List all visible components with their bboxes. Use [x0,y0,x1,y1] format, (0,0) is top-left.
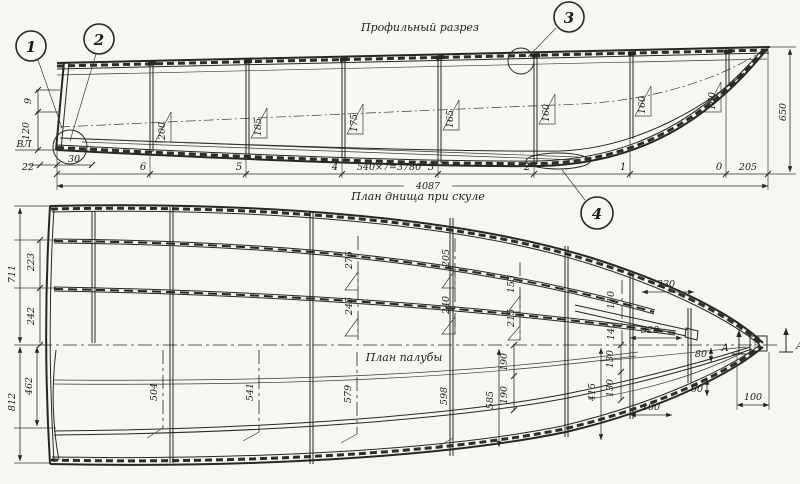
dim-9: 9 [23,98,34,104]
plan-frame-630 [630,272,633,419]
callout-3: 3 [564,9,574,27]
deck-dim-60: 60 [691,384,703,395]
deck-dim-541: 541 [245,383,256,401]
frame-5 [246,59,249,157]
waterline-label: ВЛ [16,139,33,150]
callout-2: 2 [93,31,104,49]
dim-650: 650 [778,103,789,121]
frame-flag-160a: 160 [541,104,552,122]
deck-dim-100a: 100 [642,402,660,413]
dim-462: 462 [24,377,35,396]
deck-dim-190a: 190 [499,353,510,371]
chine-outline-hatch [51,208,761,344]
deck-dim-190b: 190 [499,386,510,404]
chine-dim-153: 153 [506,275,517,293]
frame-0 [726,49,729,86]
deck-dim-80: 80 [695,349,707,360]
profile-title: Профильный разрез [360,21,479,34]
callout-1: 1 [26,38,36,56]
deck-dim-100b: 100 [744,392,762,403]
frame-flag-160c: 160 [707,92,718,110]
deck-dim-130b: 130 [605,379,616,397]
dim-bow-205: 205 [738,162,757,173]
blueprint-canvas: 200 185 175 165 160 160 160 Профильный р… [0,0,800,484]
deck-plan-title: План палубы [365,351,443,364]
station-0: 0 [716,162,723,173]
plan-frame-565 [565,246,568,437]
sheer-hatch-band [57,50,769,66]
blueprint-page: 200 185 175 165 160 160 160 Профильный р… [0,0,800,484]
dim-120: 120 [21,122,32,140]
chine-flag-leaders [358,236,622,344]
stern-knee-curve [53,350,59,460]
frame-6 [150,61,153,152]
frame-flag-185: 185 [253,118,264,136]
transom-plan-inner [50,208,54,462]
station-4: 4 [331,162,338,173]
section-label-left: А [720,343,729,354]
deck-dim-415: 415 [587,383,598,402]
deck-dim-504: 504 [149,383,160,401]
chine-dim-140: 140 [606,322,617,340]
frame-flag-200: 200 [157,122,168,141]
frame-4 [342,57,345,161]
frame-flag-160b: 160 [637,96,648,114]
deck-dim-585: 585 [485,391,496,409]
deck-dim-579: 579 [343,385,354,403]
chine-dim-205: 205 [441,249,452,268]
station-6: 6 [140,162,147,173]
chine-line-profile [60,55,756,127]
plan-frame-92 [92,211,95,343]
station-1: 1 [620,162,626,173]
deck-stringer-2 [54,352,638,384]
chine-dim-245: 245 [344,297,355,316]
transom-plan-outer [46,206,50,464]
section-label-right: А [795,341,800,352]
station-2: 2 [523,162,530,173]
chine-dim-240: 240 [441,296,452,315]
dim-30: 30 [68,154,80,165]
chine-plan-title: План днища при скуле [350,190,485,203]
chine-dim-275: 275 [344,251,355,270]
chine-dim-215: 215 [506,309,517,328]
station-5: 5 [236,162,242,173]
plan-frame-688 [688,308,691,383]
frame-2 [534,53,537,164]
frame-flag-165: 165 [445,110,456,128]
dim-812: 812 [7,393,18,411]
chine-dim-110: 110 [606,291,617,309]
deck-dim-598: 598 [439,387,450,405]
dim-242: 242 [26,307,37,326]
callout-1-leader [38,60,62,128]
deck-dim-130a: 130 [605,350,616,368]
frame-1 [630,51,633,139]
chine-outline-outer [50,205,763,343]
frame-flag-175: 175 [349,114,360,132]
dim-711: 711 [7,265,18,283]
deck-flag-diagonals [147,428,453,447]
plan-view: План днища при скуле План палубы [7,190,800,465]
callout-4: 4 [592,205,602,223]
dim-22: 22 [21,162,34,173]
station-3: 3 [428,162,434,173]
dim-330: 330 [657,279,675,290]
dim-spacing: 540×7=3780 [357,162,421,173]
frame-3 [438,55,441,163]
dim-320: 320 [641,325,659,336]
callout-4-leader [562,170,585,200]
dim-223: 223 [26,253,37,272]
